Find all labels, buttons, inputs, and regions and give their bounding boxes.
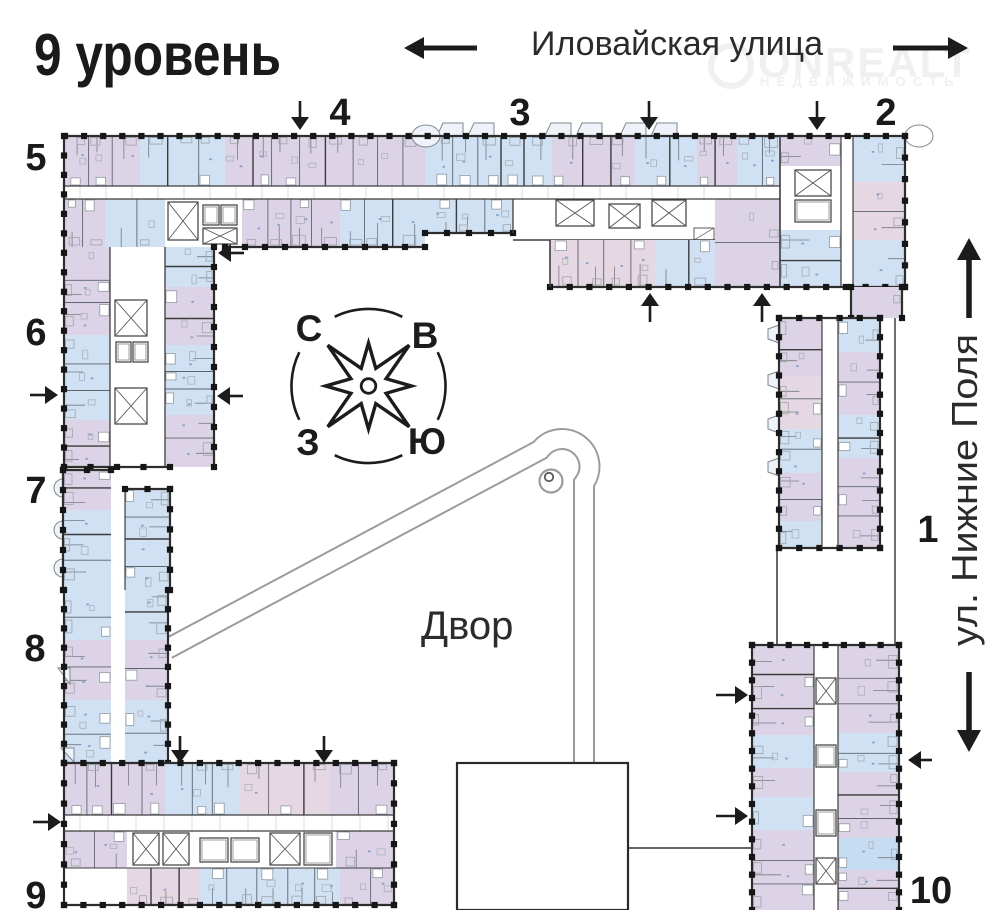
svg-text:Иловайская улица: Иловайская улица — [531, 25, 823, 63]
svg-text:4: 4 — [329, 92, 350, 134]
svg-text:8: 8 — [24, 628, 45, 670]
svg-text:3: 3 — [509, 92, 530, 134]
svg-text:З: З — [296, 422, 319, 463]
svg-text:6: 6 — [25, 312, 46, 354]
svg-text:НЕДВИЖИМОСТЬ: НЕДВИЖИМОСТЬ — [760, 74, 961, 89]
svg-text:7: 7 — [25, 470, 46, 512]
svg-text:5: 5 — [25, 137, 46, 179]
svg-text:Двор: Двор — [421, 604, 513, 648]
svg-text:9 уровень: 9 уровень — [34, 22, 281, 88]
svg-text:2: 2 — [875, 92, 896, 134]
svg-text:ул. Нижние Поля: ул. Нижние Поля — [944, 334, 985, 646]
svg-text:9: 9 — [25, 875, 46, 910]
svg-text:С: С — [296, 308, 323, 349]
svg-text:Ю: Ю — [408, 421, 446, 462]
svg-text:10: 10 — [910, 870, 952, 910]
svg-text:В: В — [412, 315, 439, 356]
svg-text:1: 1 — [917, 509, 938, 551]
